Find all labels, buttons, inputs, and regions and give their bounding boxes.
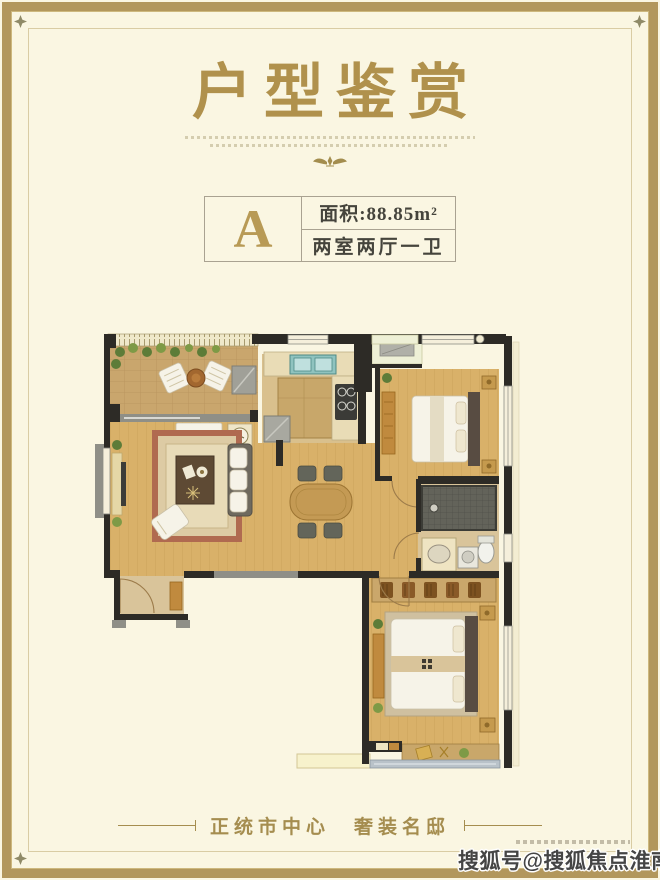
unit-area: 面积:88.85m² xyxy=(302,197,455,230)
watermark-text: 搜狐号@搜狐焦点淮南站 xyxy=(458,845,660,875)
tagline-divider-left xyxy=(118,825,196,826)
kitchen xyxy=(262,352,362,443)
tagline-divider-right xyxy=(464,825,542,826)
tagline: 正统市中心 奢装名邸 xyxy=(0,812,660,838)
unit-letter: A xyxy=(205,197,302,261)
corner-ornament-icon xyxy=(14,852,27,865)
disclaimer-fineprint xyxy=(516,840,630,844)
master-bedroom xyxy=(369,576,499,746)
page-title: 户型鉴赏 xyxy=(0,44,660,131)
corner-ornament-icon xyxy=(633,15,646,28)
floor-plan xyxy=(92,325,522,777)
title-fineprint-lines xyxy=(185,136,475,152)
unit-card: A 面积:88.85m² 两室两厅一卫 xyxy=(204,196,456,262)
tagline-text: 正统市中心 奢装名邸 xyxy=(210,812,450,839)
south-balcony xyxy=(369,741,500,768)
terrace xyxy=(108,334,258,422)
poster-background: { "palette": { "bg": "#faf6e2", "frame":… xyxy=(0,0,660,880)
living-room xyxy=(95,422,418,576)
unit-type: 两室两厅一卫 xyxy=(302,230,455,262)
wing-ornament-icon xyxy=(312,155,348,174)
entry-hall xyxy=(118,576,184,614)
corner-ornament-icon xyxy=(14,15,27,28)
